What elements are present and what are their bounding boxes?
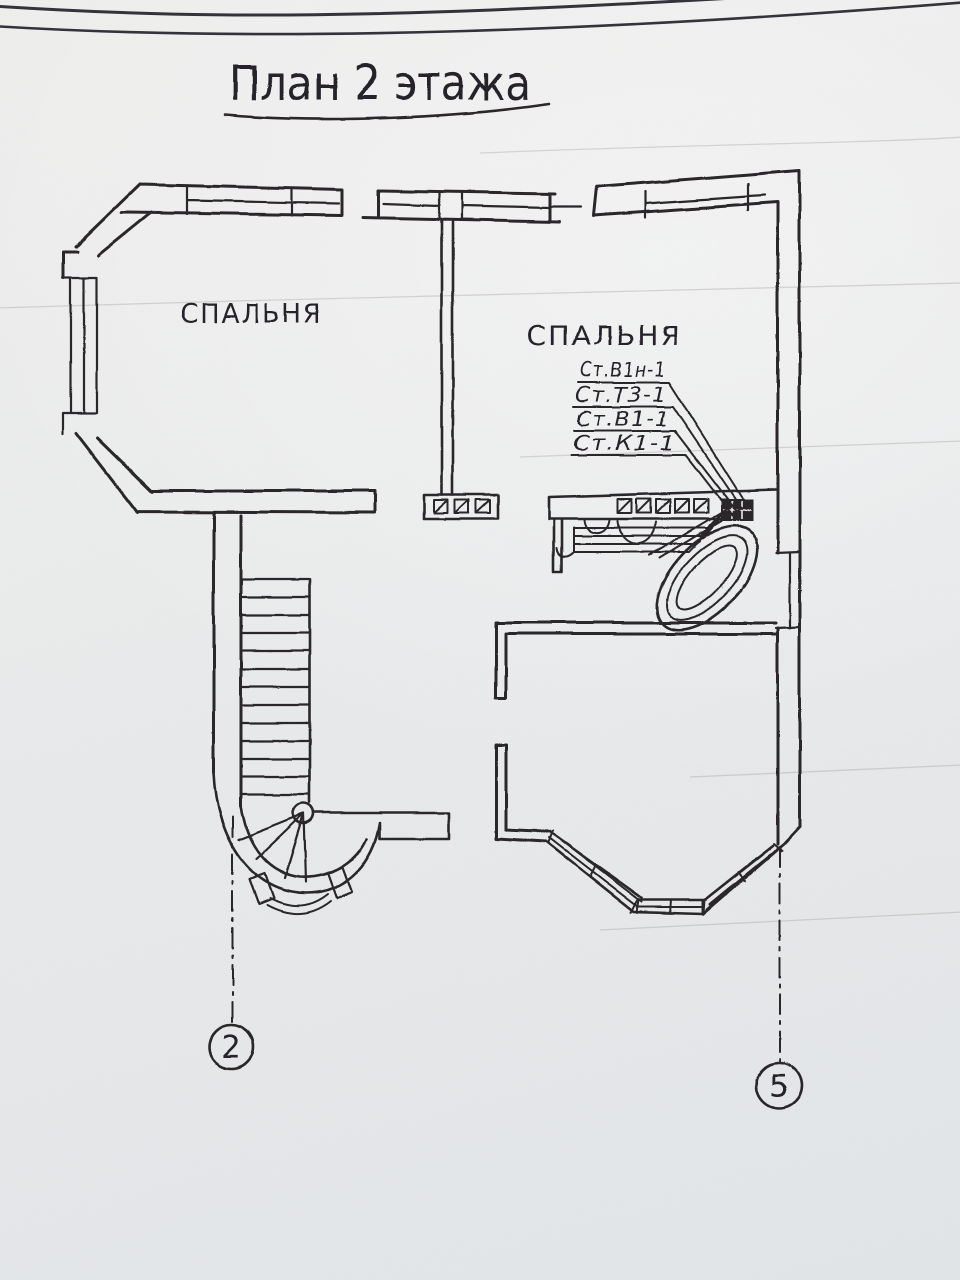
scanned-floor-plan-page: 2 5 План 2 этажа СПАЛЬНЯ СПАЛЬНЯ Ст.В1н-… xyxy=(0,0,960,1280)
axis-number-2: 2 xyxy=(221,1029,241,1065)
room-label-bedroom-right: СПАЛЬНЯ xyxy=(526,320,681,351)
axis-number-5: 5 xyxy=(768,1068,788,1104)
floor-plan-drawing: 2 5 План 2 этажа СПАЛЬНЯ СПАЛЬНЯ Ст.В1н-… xyxy=(0,0,960,1280)
drawing-title: План 2 этажа xyxy=(228,55,530,111)
riser-label-v1n: Ст.В1н-1 xyxy=(579,357,665,381)
riser-label-k1: Ст.К1-1 xyxy=(572,430,676,454)
riser-label-v1: Ст.В1-1 xyxy=(575,406,669,430)
riser-label-t3: Ст.Т3-1 xyxy=(574,382,666,406)
room-label-bedroom-left: СПАЛЬНЯ xyxy=(180,298,322,329)
